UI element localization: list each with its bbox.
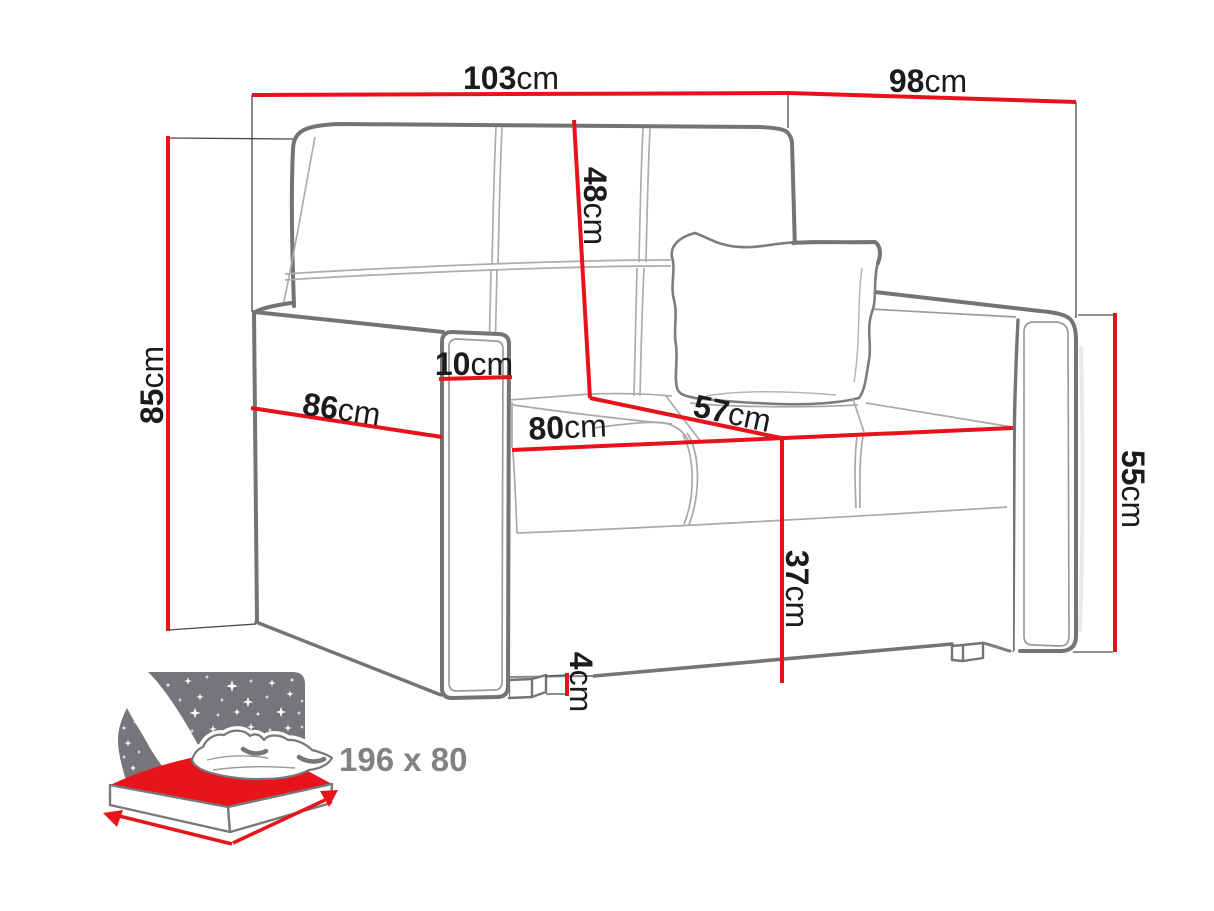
svg-text:4cm: 4cm [563,652,599,712]
svg-text:98cm: 98cm [889,63,967,99]
svg-text:48cm: 48cm [577,167,613,245]
svg-text:55cm: 55cm [1115,450,1151,528]
svg-text:85cm: 85cm [134,346,170,424]
svg-text:37cm: 37cm [779,550,815,628]
svg-text:80cm: 80cm [528,407,608,446]
svg-text:10cm: 10cm [435,346,513,382]
svg-text:103cm: 103cm [463,60,559,96]
svg-text:196 x 80: 196 x 80 [339,741,467,778]
